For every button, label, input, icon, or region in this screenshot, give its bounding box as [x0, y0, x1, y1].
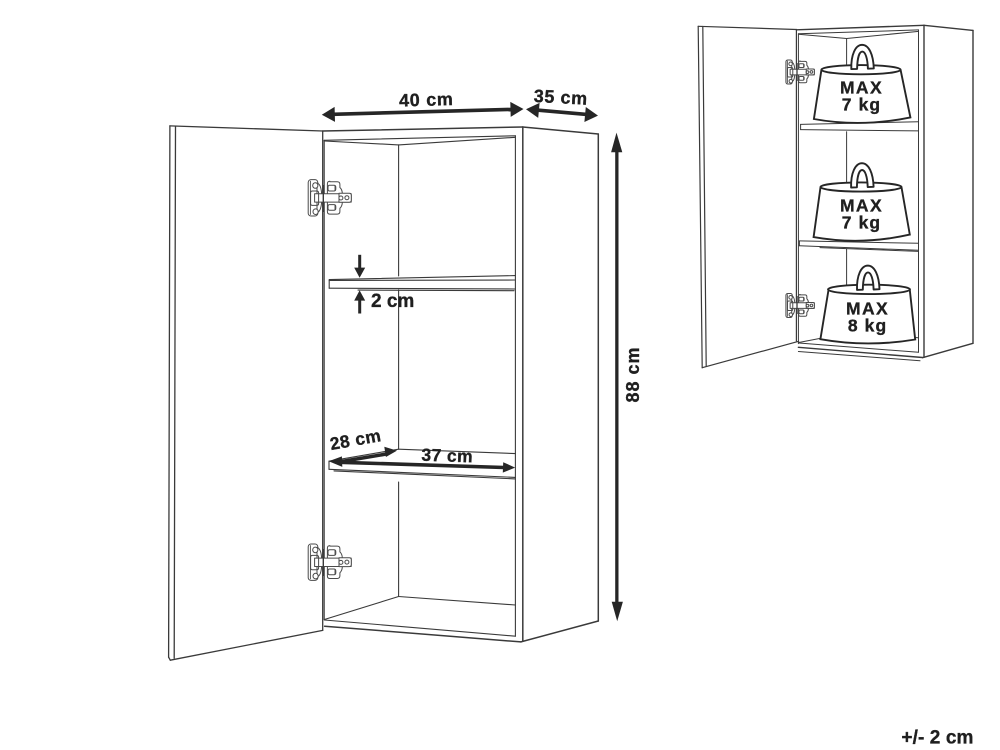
svg-text:+/- 2 cm: +/- 2 cm: [901, 728, 973, 749]
svg-text:28 cm: 28 cm: [328, 425, 382, 454]
svg-text:7 kg: 7 kg: [842, 95, 881, 115]
svg-text:2 cm: 2 cm: [371, 291, 414, 312]
svg-text:88 cm: 88 cm: [623, 346, 643, 402]
svg-text:35 cm: 35 cm: [533, 86, 588, 109]
svg-text:40 cm: 40 cm: [399, 89, 454, 111]
svg-text:37 cm: 37 cm: [421, 445, 473, 467]
svg-text:7 kg: 7 kg: [842, 212, 881, 232]
svg-text:8 kg: 8 kg: [848, 315, 887, 335]
